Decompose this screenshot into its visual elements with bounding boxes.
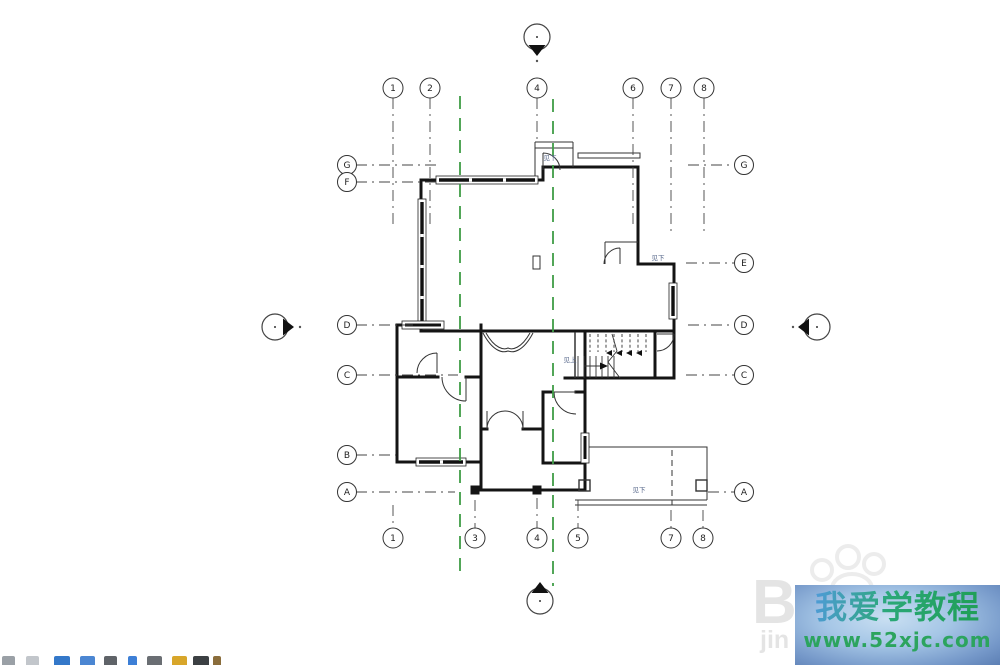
watermark: 我爱学教程 www.52xjc.com bbox=[795, 585, 1000, 665]
view-bar-icon-pan[interactable] bbox=[2, 656, 15, 665]
ghost-logo-text: jin bbox=[760, 628, 789, 653]
watermark-url: www.52xjc.com bbox=[803, 628, 991, 652]
plan-annotation: 见下 bbox=[633, 486, 647, 494]
watermark-title: 我爱学教程 bbox=[815, 590, 980, 625]
elevation-marker[interactable] bbox=[262, 314, 294, 340]
marker-dot bbox=[792, 326, 794, 328]
grid-bubble-label: C bbox=[741, 371, 747, 381]
view-bar-icon-zoom[interactable] bbox=[26, 656, 39, 665]
elevation-arrow-icon bbox=[532, 582, 549, 593]
grid-bubble-label: F bbox=[344, 178, 349, 188]
view-bar-icon-shadows[interactable] bbox=[147, 656, 162, 665]
view-bar-icon-crop-region[interactable] bbox=[193, 656, 209, 665]
stairs bbox=[578, 334, 646, 378]
elevation-marker[interactable] bbox=[798, 314, 830, 340]
elevation-marker[interactable] bbox=[524, 24, 550, 56]
grid-bubble-label: 6 bbox=[630, 84, 636, 94]
grid-bubble-label: 4 bbox=[534, 84, 540, 94]
view-bar-icon-pencil[interactable] bbox=[213, 656, 221, 665]
grid-bubble-label: 8 bbox=[701, 84, 707, 94]
grid-bubble-label: C bbox=[344, 371, 350, 381]
marker-dot bbox=[299, 326, 301, 328]
grid-bubble-label: D bbox=[741, 321, 748, 331]
view-bar-icon-crop-view[interactable] bbox=[172, 656, 187, 665]
view-bar-icon-detail-level[interactable] bbox=[80, 656, 95, 665]
grid-bubble-label: A bbox=[344, 488, 351, 498]
ghost-logo-letter: B bbox=[752, 572, 797, 634]
marker-dot bbox=[536, 60, 538, 62]
grid-bubble-label: 2 bbox=[427, 84, 433, 94]
plan-annotation: 见下 bbox=[544, 154, 558, 162]
grid-bubble-label: G bbox=[741, 161, 748, 171]
grid-bubble-label: G bbox=[344, 161, 351, 171]
doors bbox=[417, 153, 674, 429]
elevation-marker[interactable] bbox=[527, 582, 553, 614]
plan-annotation: 见上 bbox=[564, 355, 578, 364]
grid-bubble-label: 3 bbox=[472, 534, 478, 544]
elevation-arrow-icon bbox=[529, 45, 546, 56]
grid-bubble-label: E bbox=[741, 259, 747, 269]
view-bar-icon-scale[interactable] bbox=[54, 656, 70, 665]
view-bar-icon-visual-style[interactable] bbox=[104, 656, 117, 665]
view-control-bar[interactable] bbox=[0, 653, 240, 665]
grid-bubble-label: A bbox=[741, 488, 748, 498]
grid-bubble-label: 1 bbox=[390, 534, 396, 544]
grid-bubble-label: D bbox=[344, 321, 351, 331]
grid-bubble-label: 7 bbox=[668, 534, 674, 544]
elevation-arrow-icon bbox=[798, 319, 809, 336]
grid-bubble-label: 5 bbox=[575, 534, 581, 544]
elevation-arrow-icon bbox=[283, 319, 294, 336]
grid-bubble-label: 4 bbox=[534, 534, 540, 544]
grid-bubble-label: B bbox=[344, 451, 350, 461]
view-bar-icon-sun-path[interactable] bbox=[128, 656, 137, 665]
windows bbox=[402, 176, 677, 466]
drawing-area: 124678134578GFDCBAGEDCA 见下见下见上见下 B jin 我… bbox=[0, 0, 1000, 665]
grid-bubble-label: 8 bbox=[700, 534, 706, 544]
grid-bubble-label: 7 bbox=[668, 84, 674, 94]
grid-bubble-label: 1 bbox=[390, 84, 396, 94]
plan-annotation: 见下 bbox=[652, 254, 666, 262]
